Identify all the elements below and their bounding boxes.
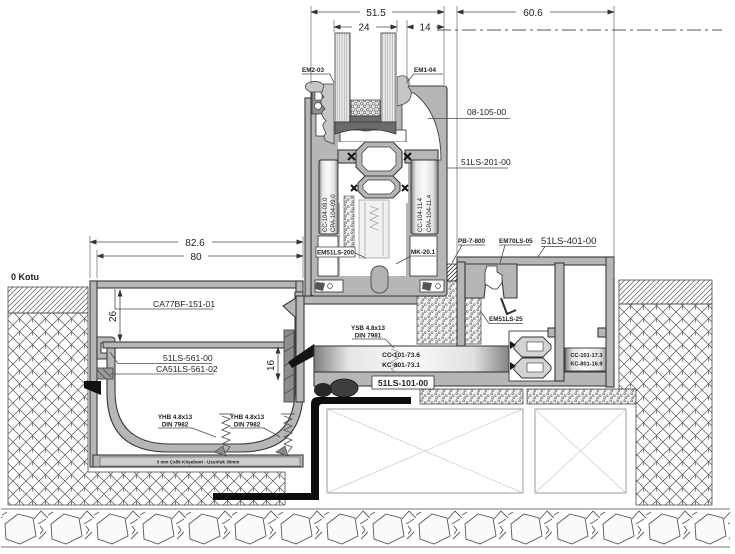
svg-text:EM1-04: EM1-04 (414, 67, 437, 74)
svg-text:EM51LS-200: EM51LS-200 (317, 250, 355, 257)
svg-text:51.5: 51.5 (366, 8, 386, 19)
svg-text:08-105-00: 08-105-00 (467, 107, 506, 117)
svg-text:EM70LS-05: EM70LS-05 (499, 238, 533, 245)
svg-text:YHB 4.8x13: YHB 4.8x13 (230, 414, 265, 421)
svg-text:24: 24 (358, 23, 370, 34)
svg-text:YSB 4.8x13: YSB 4.8x13 (351, 325, 385, 332)
svg-text:CC-101-73.6: CC-101-73.6 (382, 352, 420, 359)
svg-text:CC-101-17.3: CC-101-17.3 (570, 353, 602, 359)
svg-text:16: 16 (266, 359, 277, 371)
svg-text:51LS-561-00: 51LS-561-00 (163, 353, 213, 363)
svg-text:51LS-201-00: 51LS-201-00 (461, 157, 511, 167)
svg-text:DIN 7981: DIN 7981 (355, 333, 382, 340)
svg-text:CPA-104-09.0: CPA-104-09.0 (331, 194, 337, 232)
svg-text:KC-801-73.1: KC-801-73.1 (382, 362, 420, 369)
svg-text:14: 14 (419, 23, 431, 34)
svg-text:EM2-03: EM2-03 (302, 67, 325, 74)
svg-text:MK-20.1: MK-20.1 (411, 249, 436, 256)
svg-text:0 Kotu: 0 Kotu (11, 272, 39, 282)
svg-text:82.6: 82.6 (185, 238, 205, 249)
svg-text:DIN 7982: DIN 7982 (162, 422, 189, 429)
svg-text:DIN 7982: DIN 7982 (234, 422, 261, 429)
svg-text:60.6: 60.6 (523, 8, 543, 19)
svg-text:3 mm Çelik Köşebent - Uzunluk: 3 mm Çelik Köşebent - Uzunluk 30mm (157, 460, 240, 465)
svg-text:26: 26 (108, 310, 119, 322)
svg-text:PB-7-800: PB-7-800 (458, 238, 485, 245)
svg-text:51LS-401-00: 51LS-401-00 (541, 236, 596, 247)
svg-text:EM51LS-25: EM51LS-25 (489, 316, 523, 323)
svg-text:CPA-104-11.4: CPA-104-11.4 (427, 194, 433, 232)
svg-text:CA51LS-561-02: CA51LS-561-02 (156, 364, 218, 374)
svg-text:KC-801-16.9: KC-801-16.9 (570, 362, 602, 368)
svg-text:51LS-101-00: 51LS-101-00 (378, 378, 428, 388)
svg-text:CC-104-09.0: CC-104-09.0 (323, 197, 329, 232)
svg-text:YHB 4.8x13: YHB 4.8x13 (158, 414, 193, 421)
svg-text:CC-104-11.4: CC-104-11.4 (418, 197, 424, 232)
svg-text:CA77BF-151-01: CA77BF-151-01 (153, 299, 215, 309)
svg-text:80: 80 (190, 252, 202, 263)
